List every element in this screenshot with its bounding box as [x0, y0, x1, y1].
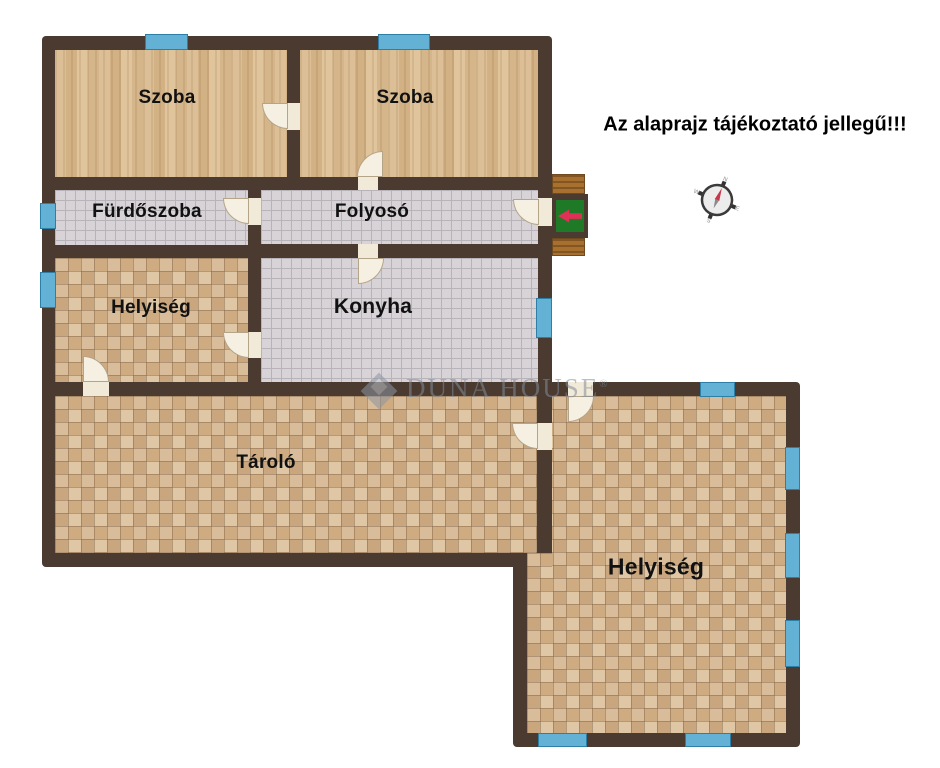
window-marker	[145, 34, 188, 50]
window-marker	[40, 203, 56, 229]
tarolo-floor	[55, 396, 537, 553]
window-marker	[685, 733, 731, 747]
door-gap	[568, 382, 593, 396]
window-marker	[785, 533, 800, 578]
door-gap	[537, 423, 552, 450]
window-marker	[538, 733, 587, 747]
floor-plan: Szoba Szoba Fürdőszoba Folyosó Helyiség …	[0, 0, 940, 768]
compass-s: S	[705, 218, 711, 224]
disclaimer-text: Az alaprajz tájékoztató jellegű!!!	[603, 114, 906, 137]
entry-step-top	[552, 174, 585, 194]
door-gap	[248, 198, 261, 225]
room-label-szoba-left: Szoba	[139, 87, 196, 109]
door-gap	[538, 198, 552, 226]
konyha-floor	[261, 258, 538, 382]
window-marker	[378, 34, 430, 50]
room-label-furdoszoba: Fürdőszoba	[92, 201, 202, 223]
szoba-right-floor	[300, 50, 538, 177]
compass-w: W	[693, 189, 700, 197]
compass-icon: N E S W	[693, 176, 741, 224]
window-marker	[785, 447, 800, 490]
door-gap	[358, 177, 378, 190]
room-label-folyoso: Folyosó	[335, 201, 409, 223]
entry-step-bottom	[552, 238, 585, 256]
room-label-helyiseg-left: Helyiség	[111, 297, 191, 319]
window-marker	[40, 272, 56, 308]
room-label-helyiseg-right: Helyiség	[608, 554, 704, 581]
door-gap	[248, 332, 261, 358]
window-marker	[536, 298, 552, 338]
room-label-konyha: Konyha	[334, 295, 412, 319]
window-marker	[785, 620, 800, 667]
door-gap	[287, 103, 300, 130]
helyiseg-right-floor-patch	[527, 553, 552, 567]
door-gap	[83, 382, 109, 396]
compass-e: E	[734, 206, 740, 213]
szoba-left-floor	[55, 50, 287, 177]
window-marker	[700, 382, 735, 397]
door-gap	[358, 244, 378, 258]
room-label-szoba-right: Szoba	[377, 87, 434, 109]
room-label-tarolo: Tároló	[236, 452, 295, 474]
